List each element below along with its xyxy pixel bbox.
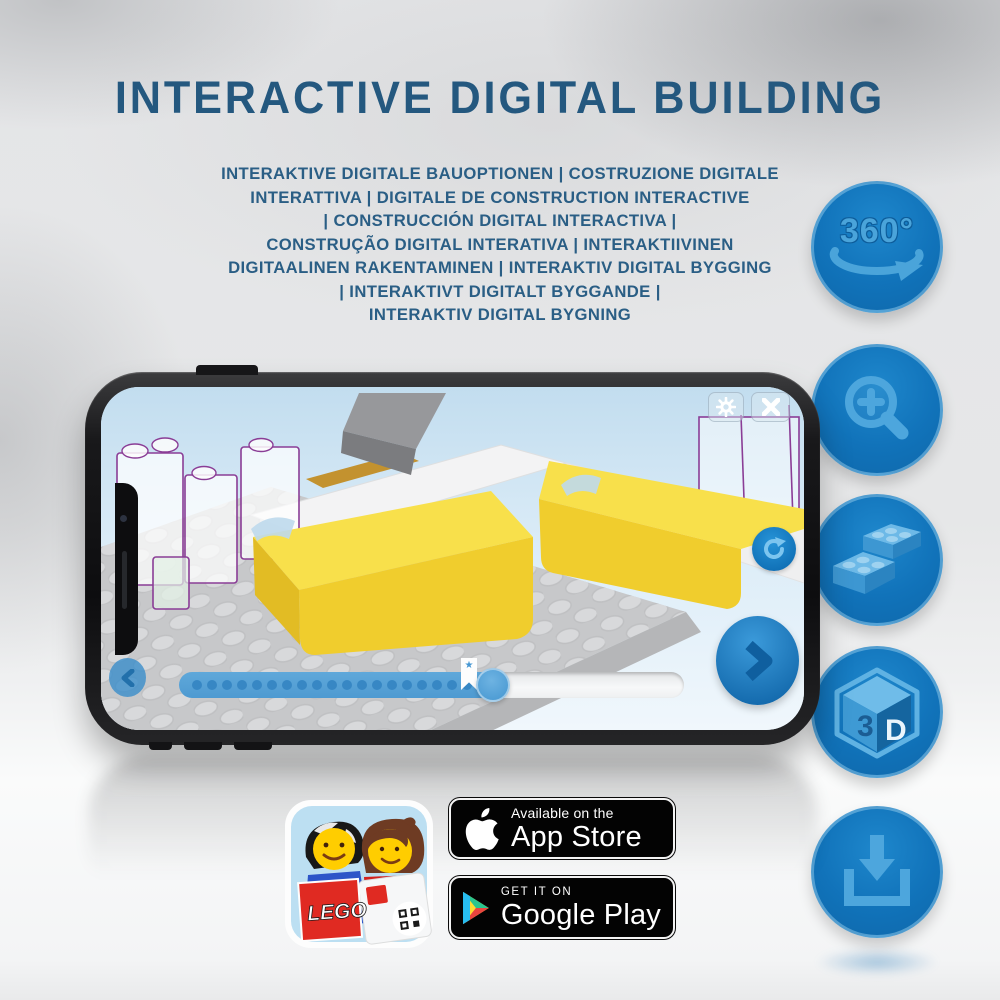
camera-dot <box>120 515 127 522</box>
progress-dot <box>447 680 457 690</box>
rotate-360-label: 360° <box>840 212 914 251</box>
progress-dot <box>312 680 322 690</box>
next-step-button[interactable] <box>716 616 799 705</box>
progress-dot <box>267 680 277 690</box>
phone-volume-button <box>234 742 272 750</box>
phone-notch <box>115 483 138 655</box>
brick-top <box>863 524 921 559</box>
apple-icon <box>463 807 499 851</box>
app-store-badge[interactable]: Available on the App Store <box>449 798 675 859</box>
progress-dot <box>387 680 397 690</box>
phone: ★ <box>85 372 820 745</box>
cube-side-letter: D <box>885 714 907 747</box>
close-button[interactable] <box>751 392 790 422</box>
progress-dot <box>252 680 262 690</box>
google-play-badge[interactable]: GET IT ON Google Play <box>449 876 675 939</box>
brick-bottom <box>833 552 895 594</box>
cube-front-letter: 3 <box>857 710 874 743</box>
progress-dot <box>417 680 427 690</box>
progress-dot <box>207 680 217 690</box>
progress-dot <box>237 680 247 690</box>
feature-circle-360: 360° <box>811 181 943 313</box>
app-store-line1: Available on the <box>511 805 642 821</box>
rotate-icon <box>760 535 788 563</box>
google-play-line2: Google Play <box>501 899 661 931</box>
back-icon <box>121 669 135 687</box>
app-store-line2: App Store <box>511 821 642 853</box>
progress-handle[interactable] <box>476 668 510 702</box>
bricks-icon <box>829 514 925 606</box>
zoom-in-icon <box>838 371 916 449</box>
phone-volume-button <box>149 742 172 750</box>
progress-dot <box>432 680 442 690</box>
previous-step-button[interactable] <box>109 658 146 697</box>
google-play-line1: GET IT ON <box>501 885 661 899</box>
progress-dot <box>327 680 337 690</box>
progress-dot <box>402 680 412 690</box>
progress-dot <box>222 680 232 690</box>
progress-dot <box>282 680 292 690</box>
progress-dot <box>192 680 202 690</box>
circle-reflection <box>815 948 939 976</box>
progress-dot <box>357 680 367 690</box>
feature-circle-zoom <box>811 344 943 476</box>
lego-logo-text: LEGO <box>306 898 367 925</box>
close-icon <box>762 398 780 416</box>
page-title: INTERACTIVE DIGITAL BUILDING <box>20 72 980 124</box>
settings-button[interactable] <box>708 392 744 422</box>
subtitle-line: INTERAKTIV DIGITAL BYGNING <box>10 303 990 327</box>
feature-circle-3d: 3 D <box>811 646 943 778</box>
feature-circle-download <box>811 806 943 938</box>
lego-app-icon: LEGO <box>284 799 434 949</box>
progress-fill <box>179 672 505 698</box>
phone-volume-button <box>184 742 222 750</box>
rotate-view-button[interactable] <box>752 527 796 571</box>
instruction-card <box>358 872 432 945</box>
speaker-slit <box>122 551 127 609</box>
download-icon <box>835 831 919 913</box>
phone-screen: ★ <box>101 387 804 730</box>
gear-icon <box>716 397 736 417</box>
google-play-icon <box>463 886 489 930</box>
phone-power-button <box>196 365 258 375</box>
feature-circle-bricks <box>811 494 943 626</box>
poster: INTERACTIVE DIGITAL BUILDING INTERAKTIVE… <box>0 0 1000 1000</box>
rotate-360-icon <box>825 247 929 283</box>
lego-logo: LEGO <box>298 879 368 941</box>
progress-dot <box>342 680 352 690</box>
progress-dot <box>372 680 382 690</box>
subtitle-line: INTERAKTIVE DIGITALE BAUOPTIONEN | COSTR… <box>10 162 990 186</box>
progress-bar[interactable]: ★ <box>179 672 684 698</box>
star-icon: ★ <box>465 658 474 673</box>
progress-dot <box>297 680 307 690</box>
3d-cube-icon: 3 D <box>831 664 923 760</box>
next-icon <box>743 641 773 681</box>
